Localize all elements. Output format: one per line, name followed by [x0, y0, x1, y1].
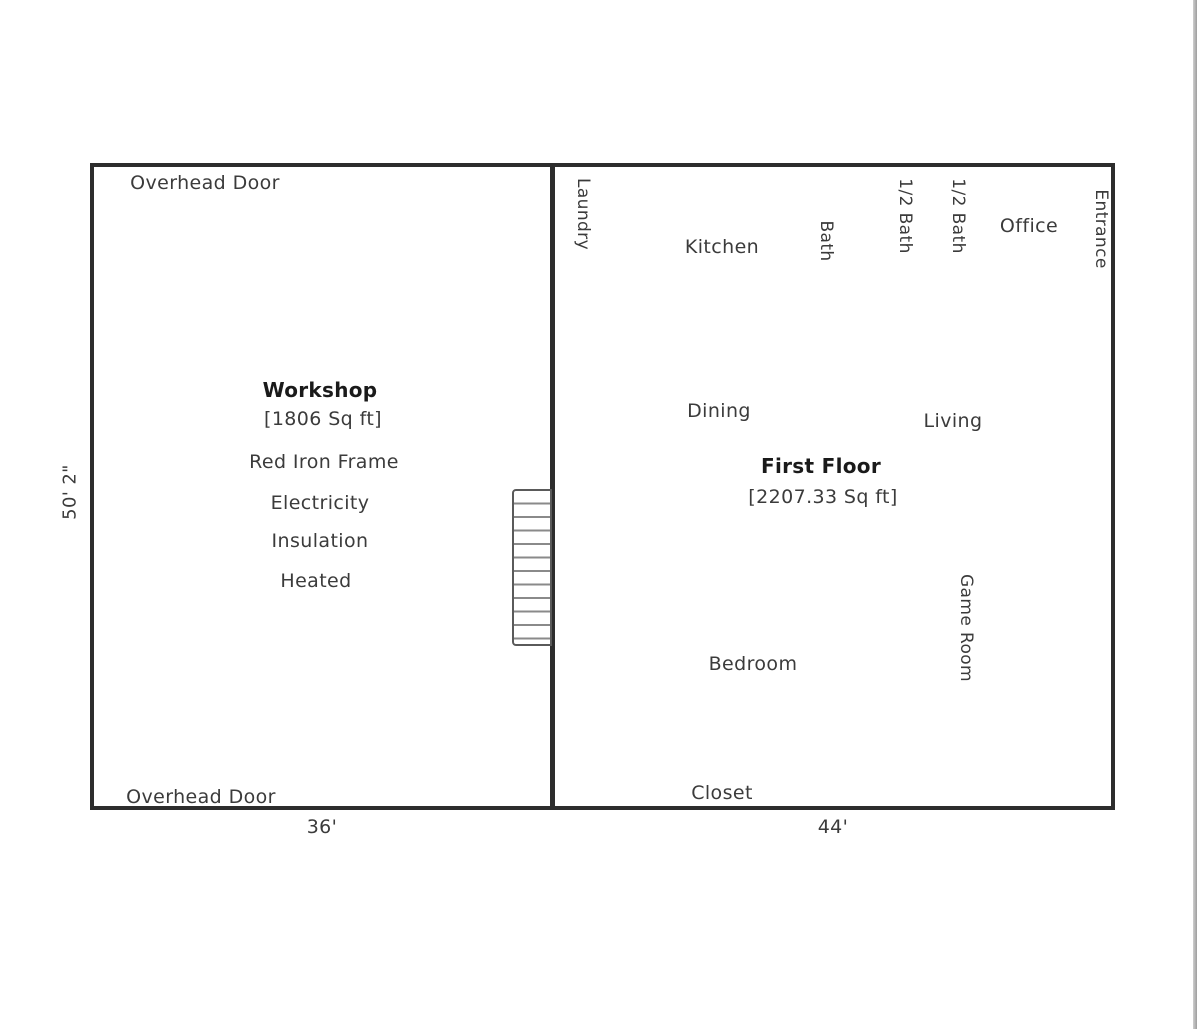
- first-floor-title: First Floor: [761, 454, 881, 478]
- room-label-laundry: Laundry: [573, 178, 593, 250]
- room-label-closet: Closet: [691, 782, 753, 804]
- room-label-kitchen: Kitchen: [685, 236, 759, 258]
- overhead-door-bottom-label: Overhead Door: [126, 786, 276, 808]
- overhead-door-top-label: Overhead Door: [130, 172, 280, 194]
- room-label-dining: Dining: [687, 400, 751, 422]
- workshop-feature-insulation: Insulation: [272, 530, 369, 552]
- workshop-title: Workshop: [263, 378, 378, 402]
- room-label-bath: Bath: [816, 220, 836, 261]
- workshop-feature-heated: Heated: [280, 570, 351, 592]
- workshop-feature-red-iron-frame: Red Iron Frame: [249, 451, 399, 473]
- room-label-half-bath-1: 1/2 Bath: [895, 178, 915, 253]
- dimension-first-floor-width-label: 44': [818, 816, 849, 838]
- room-label-entrance: Entrance: [1091, 189, 1111, 268]
- staircase: [512, 489, 552, 646]
- room-label-half-bath-2: 1/2 Bath: [948, 178, 968, 253]
- floor-plan-page: Overhead Door Workshop [1806 Sq ft] Red …: [0, 0, 1200, 1029]
- building-outline: [90, 163, 1115, 810]
- room-label-game-room: Game Room: [956, 574, 976, 682]
- workshop-area-label: [1806 Sq ft]: [264, 408, 382, 430]
- first-floor-area-label: [2207.33 Sq ft]: [748, 486, 897, 508]
- room-label-bedroom: Bedroom: [709, 653, 798, 675]
- workshop-feature-electricity: Electricity: [271, 492, 370, 514]
- room-label-office: Office: [1000, 215, 1058, 237]
- room-label-living: Living: [924, 410, 983, 432]
- dimension-workshop-width-label: 36': [307, 816, 338, 838]
- dimension-height-label: 50' 2": [60, 464, 81, 520]
- interior-dividing-wall: [550, 163, 555, 810]
- page-edge-line: [1193, 0, 1197, 1029]
